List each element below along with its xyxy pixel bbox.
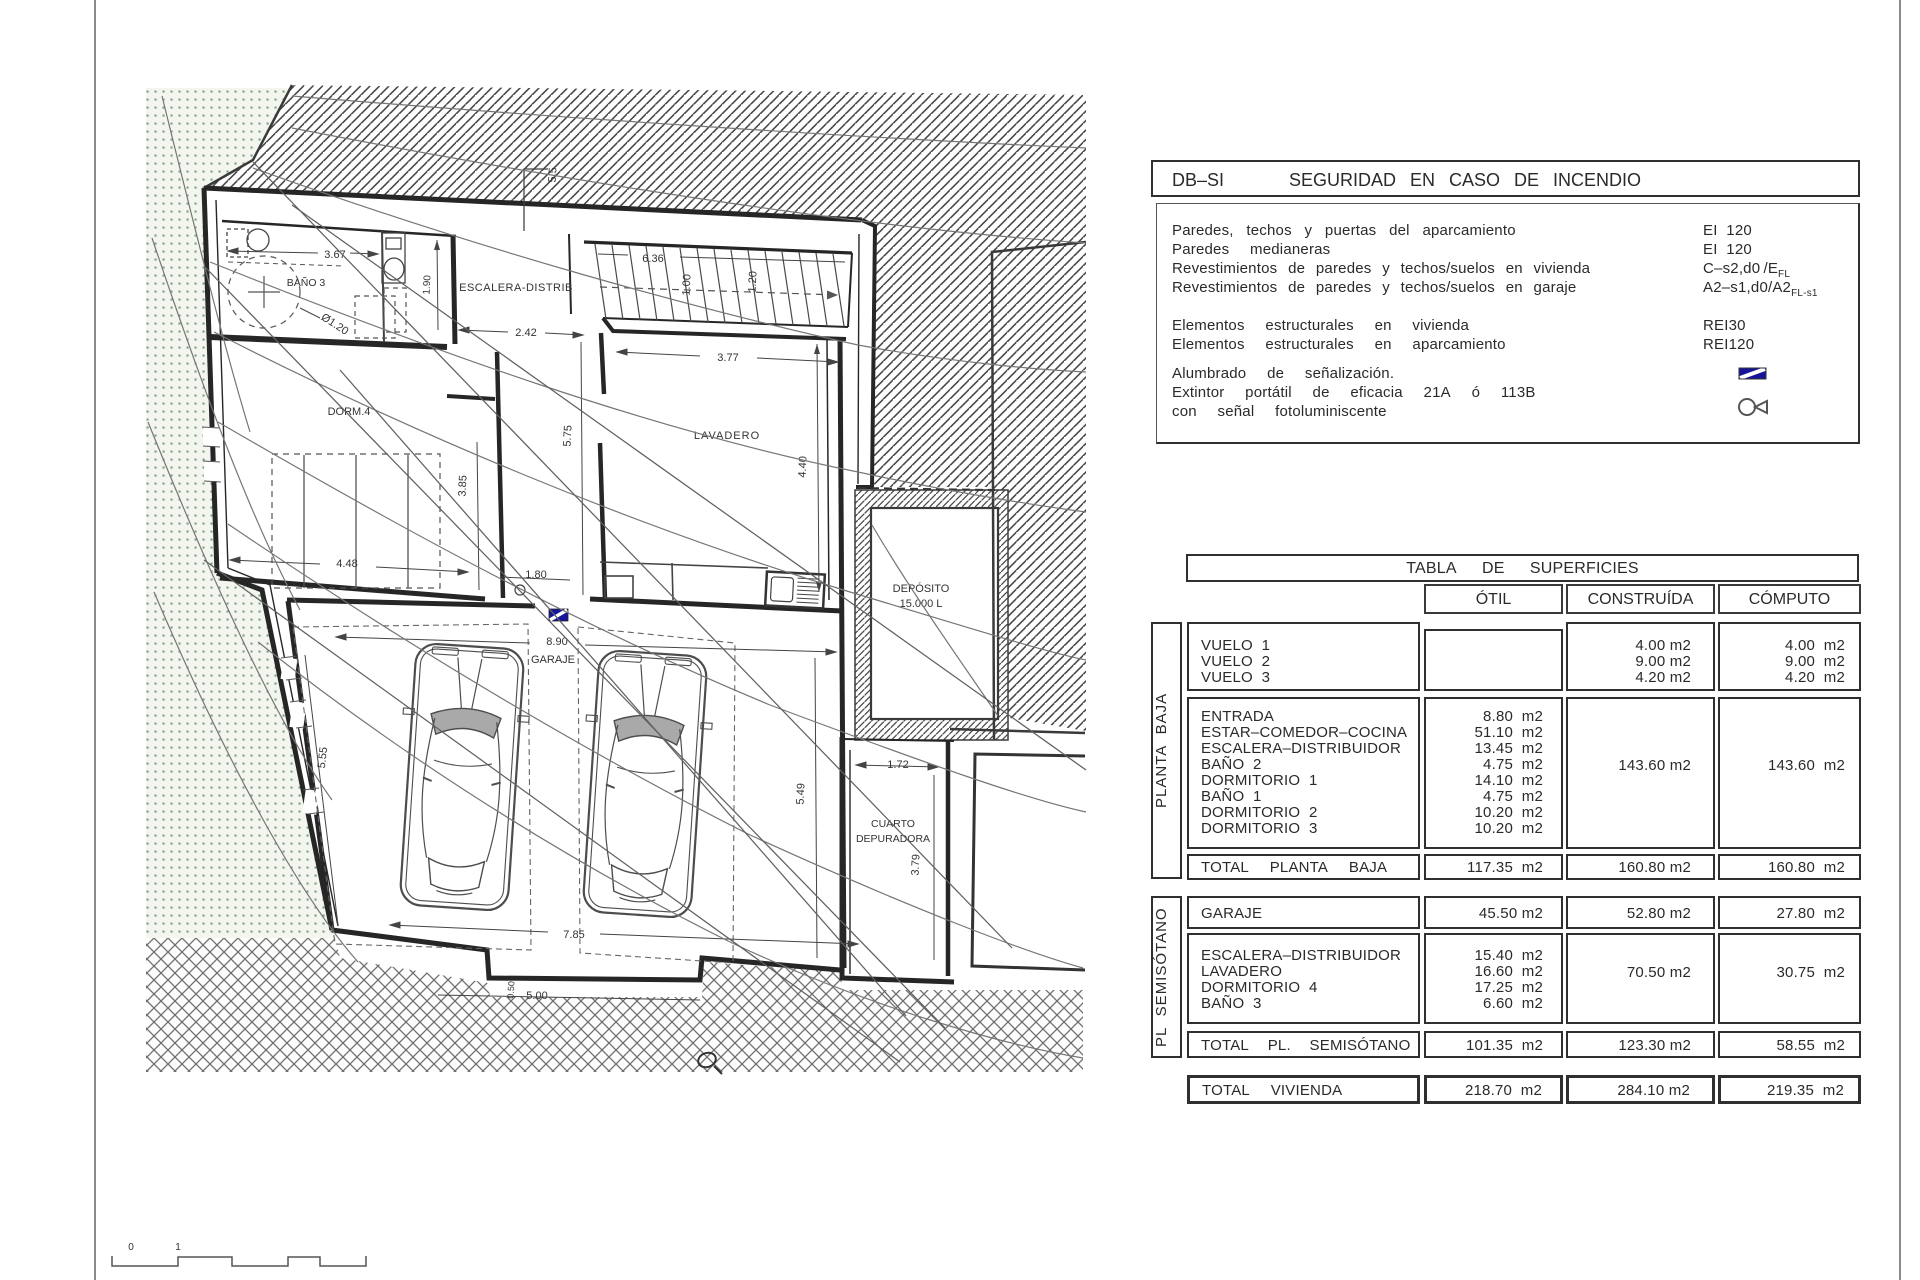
svg-text:DEPÓSITO: DEPÓSITO <box>893 582 950 595</box>
svg-text:3.79: 3.79 <box>909 854 922 876</box>
svg-text:3.85: 3.85 <box>456 475 469 497</box>
svg-text:1.80: 1.80 <box>525 569 546 581</box>
svg-text:ESCALERA-DISTRIB: ESCALERA-DISTRIB <box>459 282 573 294</box>
svg-text:1: 1 <box>175 1242 181 1253</box>
svg-text:8.90: 8.90 <box>546 636 567 648</box>
svg-text:5.55: 5.55 <box>316 746 331 769</box>
svg-text:4.48: 4.48 <box>336 558 357 570</box>
svg-text:BAÑO 3: BAÑO 3 <box>287 276 326 289</box>
svg-text:2.42: 2.42 <box>515 327 536 339</box>
svg-text:5.00: 5.00 <box>526 990 547 1002</box>
svg-text:0.50: 0.50 <box>506 981 517 999</box>
svg-text:GARAJE: GARAJE <box>531 654 575 666</box>
svg-text:1.20: 1.20 <box>746 271 759 293</box>
svg-text:1.00: 1.00 <box>680 274 693 296</box>
svg-text:LAVADERO: LAVADERO <box>694 430 760 442</box>
svg-text:0: 0 <box>128 1242 134 1253</box>
svg-text:DORM.4: DORM.4 <box>328 406 371 418</box>
svg-text:7.85: 7.85 <box>563 929 584 941</box>
svg-text:1.72: 1.72 <box>887 759 908 771</box>
svg-text:DEPURADORA: DEPURADORA <box>856 833 930 845</box>
svg-text:6.36: 6.36 <box>642 253 663 265</box>
svg-text:15.000 L: 15.000 L <box>900 598 943 610</box>
svg-text:5.49: 5.49 <box>794 783 807 805</box>
svg-text:5.75: 5.75 <box>561 425 574 447</box>
svg-text:1.90: 1.90 <box>422 274 434 294</box>
svg-text:3.77: 3.77 <box>717 352 738 364</box>
